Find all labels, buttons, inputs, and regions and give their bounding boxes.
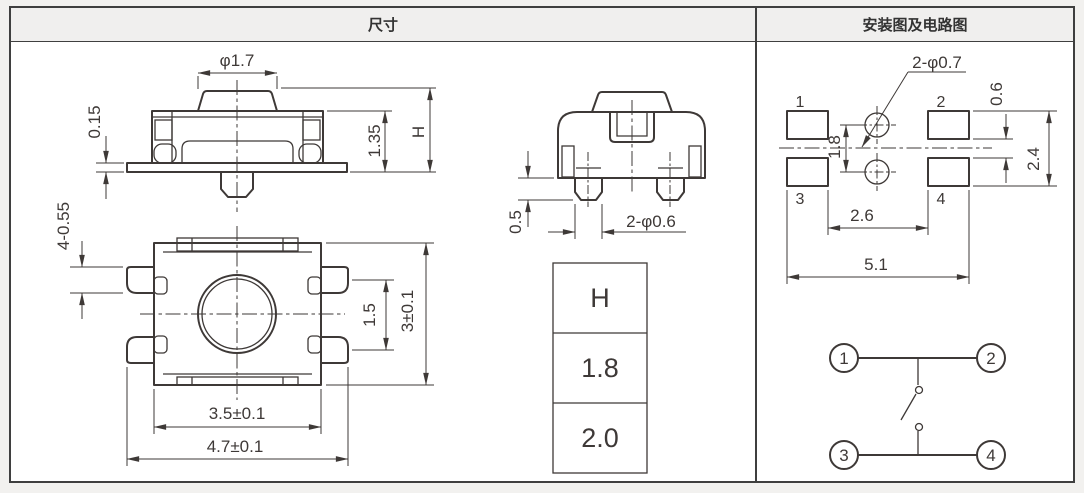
switch-contact-top [916, 387, 923, 394]
table-header-row: 尺寸 安装图及电路图 [11, 8, 1073, 42]
pad-4 [928, 158, 969, 186]
dim-pad-gap: 0.6 [987, 82, 1006, 106]
dim-button-diameter: φ1.7 [220, 51, 255, 70]
pad-1 [787, 111, 828, 139]
h-table-value-2: 2.0 [581, 423, 619, 453]
pcb-pad-layout: 1 2 3 4 2-φ0.7 [779, 53, 1057, 284]
datasheet-drawing-sheet: 尺寸 安装图及电路图 [9, 6, 1075, 483]
pad-4-label: 4 [937, 191, 946, 208]
dim-hole-pitch: 1.8 [825, 135, 844, 159]
dim-body-width: 3.5±0.1 [209, 404, 266, 423]
switch-contact-bottom [916, 424, 923, 431]
terminal-3-label: 3 [839, 446, 848, 465]
dim-pad-outer-span: 5.1 [864, 255, 888, 274]
dimensions-panel: φ1.7 1.35 H 0.15 [11, 42, 757, 481]
dim-base-height: 1.35 [365, 124, 384, 157]
front-view-drawing: φ1.7 1.35 H 0.15 [85, 51, 436, 212]
header-mounting-circuit: 安装图及电路图 [757, 8, 1073, 41]
dim-lead-pitch: 1.5 [360, 303, 379, 327]
mounting-circuit-panel: 1 2 3 4 2-φ0.7 [757, 42, 1073, 481]
dim-holes: 2-φ0.7 [912, 53, 962, 72]
dim-overall-width: 4.7±0.1 [207, 437, 264, 456]
header-dimensions: 尺寸 [11, 8, 757, 41]
dim-foot-thickness: 0.15 [85, 105, 104, 138]
h-table-value-1: 1.8 [581, 353, 619, 383]
height-options-table: H 1.8 2.0 [553, 263, 647, 473]
circuit-diagram: 1 2 3 4 [830, 344, 1005, 469]
dim-pad-inner-span: 2.6 [850, 206, 874, 225]
terminal-1-label: 1 [839, 349, 848, 368]
switch-lever [901, 394, 916, 420]
top-view-drawing: 4-0.55 1.5 3±0.1 3.5±0.1 4.7 [54, 202, 434, 466]
side-view-drawing: 0.5 2-φ0.6 [506, 92, 705, 239]
pad-3-label: 3 [796, 191, 805, 208]
dim-leads: 4-0.55 [54, 202, 73, 250]
dimensions-drawing: φ1.7 1.35 H 0.15 [11, 42, 757, 480]
dim-total-height: H [409, 126, 428, 138]
dim-legs-diameter: 2-φ0.6 [626, 212, 676, 231]
pad-1-label: 1 [796, 94, 805, 111]
mounting-circuit-drawing: 1 2 3 4 2-φ0.7 [757, 42, 1071, 480]
pad-3 [787, 158, 828, 186]
dim-body-depth: 3±0.1 [398, 290, 417, 332]
terminal-2-label: 2 [986, 349, 995, 368]
dim-leg-protrusion: 0.5 [506, 210, 525, 234]
dim-pad-row-span: 2.4 [1024, 147, 1043, 171]
sheet-body: φ1.7 1.35 H 0.15 [11, 42, 1073, 481]
terminal-4-label: 4 [986, 446, 995, 465]
h-table-header: H [590, 283, 610, 313]
pad-2 [928, 111, 969, 139]
pad-2-label: 2 [937, 94, 946, 111]
